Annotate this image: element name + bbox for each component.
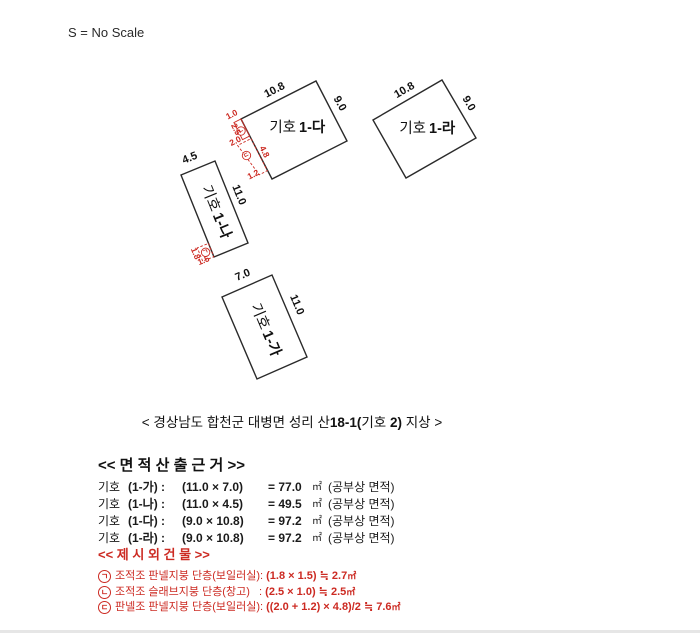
row-description: 조적조 판넬지붕 단층(보일러실): — [115, 569, 266, 585]
row-result: = 77.0 — [268, 479, 312, 496]
circled-marker: ㄴ — [98, 586, 111, 599]
extra-row: ㄴ 조적조 슬래브지붕 단층(창고) : (2.5 × 1.0) ≒ 2.5 ㎡ — [98, 585, 401, 601]
dimension-label: 9.0 — [331, 94, 349, 113]
extra-buildings-section: << 제 시 외 건 물 >> ㄱ 조적조 판넬지붕 단층(보일러실): (1.… — [98, 544, 401, 616]
row-formula: ((2.0 + 1.2) × 4.8)/2 ≒ 7.6 — [266, 600, 391, 616]
building-1-ra: 10.8 9.0 기호 1-라 — [373, 80, 478, 178]
row-unit: ㎡ — [346, 585, 355, 601]
caption-text: < 경상남도 합천군 대병면 성리 산 — [142, 415, 330, 430]
extra-row: ㄱ 조적조 판넬지붕 단층(보일러실): (1.8 × 1.5) ≒ 2.7 ㎡ — [98, 569, 401, 585]
circled-marker: ㄷ — [241, 150, 252, 161]
row-prefix: 기호 — [98, 496, 128, 513]
circled-marker: ㄱ — [98, 570, 111, 583]
annex-dim-label: 1.2 — [246, 167, 261, 181]
annex-dim-label: 1.0 — [224, 107, 239, 121]
row-result: = 97.2 — [268, 513, 312, 530]
location-caption: < 경상남도 합천군 대병면 성리 산18-1(기호 2) 지상 > — [0, 411, 584, 431]
dimension-label: 4.5 — [181, 150, 200, 167]
row-expression: (11.0 × 7.0) — [182, 479, 268, 496]
extra-row: ㄷ 판넬조 판넬지붕 단층(보일러실): ((2.0 + 1.2) × 4.8)… — [98, 600, 401, 616]
row-unit: ㎡ — [312, 496, 328, 513]
row-expression: (11.0 × 4.5) — [182, 496, 268, 513]
row-description: 조적조 슬래브지붕 단층(창고) : — [115, 585, 265, 601]
building-label: 기호 — [269, 119, 296, 136]
row-unit: ㎡ — [347, 569, 356, 585]
area-row: 기호 (1-나) : (11.0 × 4.5) = 49.5 ㎡ (공부상 면적… — [98, 496, 395, 513]
row-expression: (9.0 × 10.8) — [182, 513, 268, 530]
caption-text: 기호 — [361, 415, 390, 430]
area-section-header: << 면 적 산 출 근 거 >> — [98, 454, 395, 475]
area-rows: 기호 (1-가) : (11.0 × 7.0) = 77.0 ㎡ (공부상 면적… — [98, 479, 395, 547]
circled-marker: ㄷ — [98, 601, 111, 614]
building-label: 1-라 — [429, 120, 456, 137]
area-row: 기호 (1-다) : (9.0 × 10.8) = 97.2 ㎡ (공부상 면적… — [98, 513, 395, 530]
row-formula: (1.8 × 1.5) ≒ 2.7 — [266, 569, 347, 585]
row-id: (1-다) : — [128, 513, 182, 530]
appraisal-diagram-page: S = No Scale 4.5 11.0 기호 1-나 10.8 9.0 기호… — [0, 0, 700, 633]
row-prefix: 기호 — [98, 513, 128, 530]
building-1-na: 4.5 11.0 기호 1-나 — [181, 150, 249, 257]
dimension-label: 7.0 — [233, 267, 252, 284]
caption-bold: 18-1( — [330, 415, 362, 430]
extra-rows: ㄱ 조적조 판넬지붕 단층(보일러실): (1.8 × 1.5) ≒ 2.7 ㎡… — [98, 569, 401, 616]
area-calculation-section: << 면 적 산 출 근 거 >> 기호 (1-가) : (11.0 × 7.0… — [98, 454, 395, 547]
row-unit: ㎡ — [312, 513, 328, 530]
building-1-da: 10.8 9.0 기호 1-다 — [241, 80, 349, 179]
row-result: = 49.5 — [268, 496, 312, 513]
building-label: 1-다 — [299, 119, 326, 136]
row-id: (1-가) : — [128, 479, 182, 496]
extra-section-header: << 제 시 외 건 물 >> — [98, 544, 401, 563]
caption-text: 지상 > — [402, 415, 442, 430]
building-1-ga: 7.0 11.0 기호 1-가 — [222, 267, 307, 379]
row-prefix: 기호 — [98, 479, 128, 496]
dimension-label: 11.0 — [287, 293, 306, 317]
row-unit: ㎡ — [392, 600, 401, 616]
row-unit: ㎡ — [312, 479, 328, 496]
row-formula: (2.5 × 1.0) ≒ 2.5 — [265, 585, 346, 601]
row-note: (공부상 면적) — [328, 513, 395, 530]
area-row: 기호 (1-가) : (11.0 × 7.0) = 77.0 ㎡ (공부상 면적… — [98, 479, 395, 496]
building-label: 기호 — [399, 120, 426, 137]
row-id: (1-나) : — [128, 496, 182, 513]
dimension-label: 9.0 — [460, 94, 478, 113]
row-description: 판넬조 판넬지붕 단층(보일러실): — [115, 600, 266, 616]
row-note: (공부상 면적) — [328, 496, 395, 513]
caption-bold: 2) — [390, 415, 402, 430]
row-note: (공부상 면적) — [328, 479, 395, 496]
